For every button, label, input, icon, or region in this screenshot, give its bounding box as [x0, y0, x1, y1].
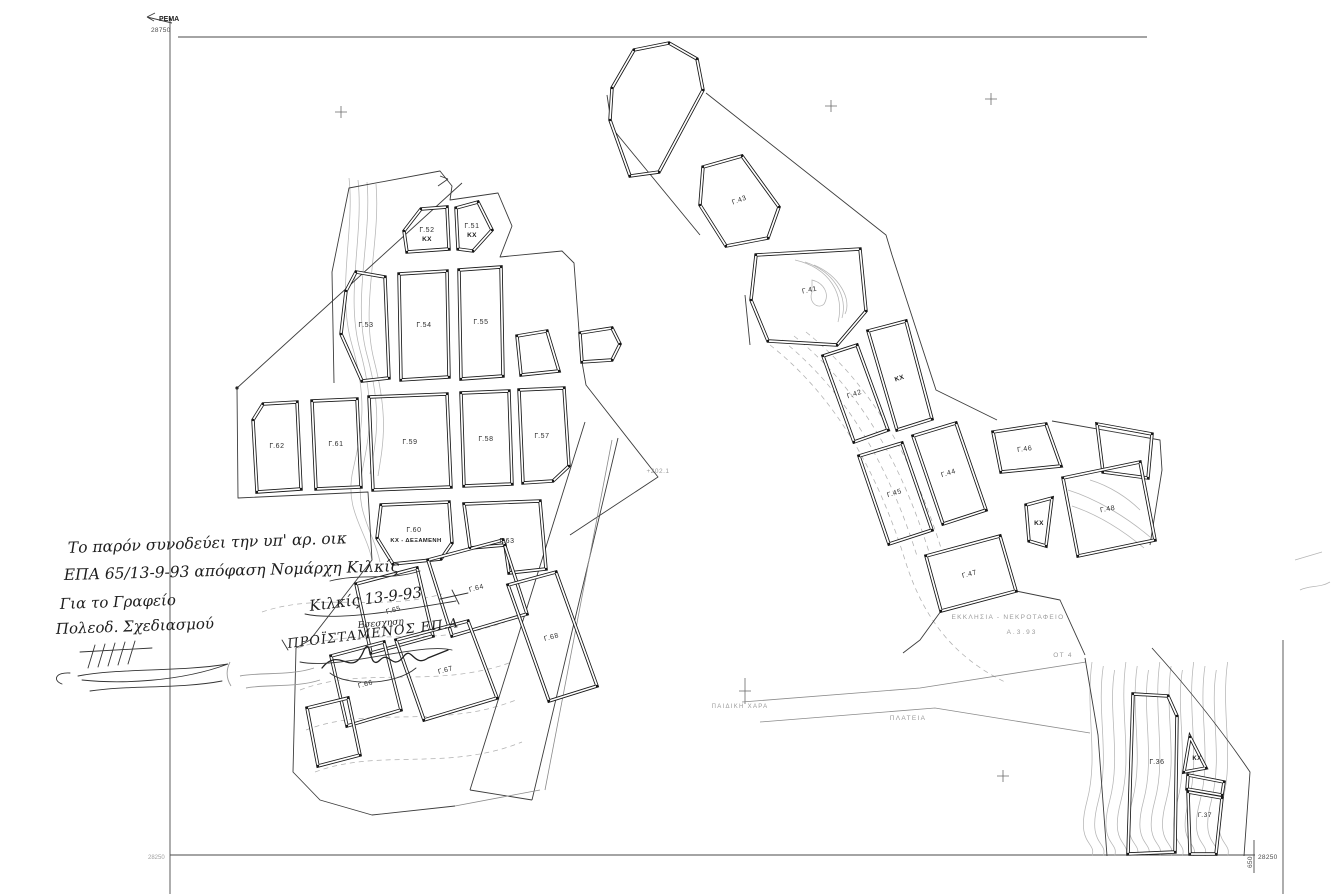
vertex-dot — [668, 42, 670, 44]
vertex-dot — [1051, 497, 1053, 499]
vertex-dot — [518, 389, 520, 391]
block-label: Γ.67 — [437, 665, 454, 676]
vertex-dot — [581, 361, 583, 363]
vertex-dot — [400, 709, 402, 711]
vertex-dot — [750, 299, 752, 301]
scribble-strikeout — [80, 641, 152, 668]
contour-line — [782, 340, 917, 556]
vertex-dot — [372, 489, 374, 491]
vertex-dot — [346, 725, 348, 727]
stamp-imprint — [227, 662, 320, 688]
vertex-dot — [611, 327, 613, 329]
block-label: Γ.42 — [846, 389, 863, 400]
vertex-dot — [539, 500, 541, 502]
vertex-dot — [296, 401, 298, 403]
vertex-dot — [1205, 767, 1207, 769]
vertex-dot — [1060, 465, 1062, 467]
vertex-dot — [912, 435, 914, 437]
vertex-dot — [552, 480, 554, 482]
vertex-dot — [507, 584, 509, 586]
vertex-dot — [446, 393, 448, 395]
vertex-dot — [548, 700, 550, 702]
block-label: Γ.68 — [543, 632, 560, 643]
zone-label: ΚΧ - ΔΕΞΑΜΕΝΗ — [390, 538, 441, 544]
registration-crosses — [335, 93, 1009, 782]
vertex-dot — [330, 655, 332, 657]
vertex-dot — [985, 509, 987, 511]
vertex-dot — [458, 269, 460, 271]
vertex-dot — [440, 558, 442, 560]
vertex-dot — [360, 486, 362, 488]
vertex-dot — [406, 251, 408, 253]
vertex-dot — [629, 175, 631, 177]
vertex-dot — [1127, 853, 1129, 855]
block-label: Γ.41 — [802, 286, 818, 296]
vertex-dot — [345, 290, 347, 292]
block-label: Γ.66 — [357, 679, 374, 690]
vertex-dot — [1154, 539, 1156, 541]
playground-label: ΠΑΙΔΙΚΗ ΧΑΡΑ — [712, 704, 769, 710]
block-label: Γ.48 — [1100, 505, 1116, 515]
vertex-dot — [252, 419, 254, 421]
vertex-dot — [508, 572, 510, 574]
vertex-dot — [317, 765, 319, 767]
handwriting-line-1: Το παρόν συνοδεύει την υπ' αρ. οικ — [68, 529, 348, 557]
vertex-dot — [1147, 477, 1149, 479]
vertex-dot — [262, 403, 264, 405]
contour-line — [1068, 490, 1150, 537]
vertex-dot — [311, 400, 313, 402]
vertex-dot — [545, 568, 547, 570]
vertex-dot — [992, 431, 994, 433]
vertex-dot — [778, 206, 780, 208]
vertex-dot — [416, 567, 418, 569]
vertex-dot — [356, 398, 358, 400]
vertex-dot — [901, 442, 903, 444]
vertex-dot — [423, 719, 425, 721]
contour-line — [1117, 662, 1126, 856]
vertex-dot — [477, 201, 479, 203]
contour-line — [345, 178, 372, 560]
vertex-dot — [696, 58, 698, 60]
vertex-dot — [568, 465, 570, 467]
vertex-dot — [905, 320, 907, 322]
vertex-dot — [563, 387, 565, 389]
vertex-dot — [491, 229, 493, 231]
bottom-right-side-coordinate: 650 — [1247, 856, 1254, 868]
vertex-dot — [520, 374, 522, 376]
register-cross-icon — [335, 106, 347, 118]
vertex-dot — [256, 491, 258, 493]
vertex-dot — [420, 208, 422, 210]
handwriting-line-4: Πολεοδ. Σχεδιασμού — [55, 614, 215, 638]
contour-line — [306, 700, 516, 730]
block-label: Γ.64 — [468, 583, 485, 594]
block-label: Γ.43 — [731, 195, 748, 207]
block-label: Γ.44 — [940, 468, 957, 479]
zone-label: ΚΧ — [467, 232, 477, 239]
vertex-dot — [450, 486, 452, 488]
block-label: Γ.61 — [328, 441, 343, 448]
vertex-dot — [1139, 461, 1141, 463]
vertex-dot — [1223, 781, 1225, 783]
survey-line-arrow — [438, 176, 448, 186]
vertex-dot — [1102, 471, 1104, 473]
vertex-dot — [865, 310, 867, 312]
vertex-dot — [867, 330, 869, 332]
block-labels: Γ.52 ΚΧ Γ.51 ΚΧ Γ.53 Γ.54 Γ.55 Γ.62 Γ.61… — [269, 195, 1212, 819]
scribble-oval — [56, 664, 228, 691]
vertex-dot — [1174, 851, 1176, 853]
right-cluster-boundary — [903, 611, 941, 653]
block-label: Γ.51 — [464, 223, 479, 230]
vertex-dot — [1028, 540, 1030, 542]
vertex-dot — [699, 204, 701, 206]
vertex-dot — [395, 639, 397, 641]
vertex-dot — [496, 697, 498, 699]
zone-label: ΚΧ — [1192, 756, 1201, 762]
vertex-dot — [1132, 693, 1134, 695]
vertex-dot — [315, 488, 317, 490]
vertex-dot — [451, 542, 453, 544]
handwriting-place-date: Κιλκίς 13-9-93 — [307, 583, 423, 615]
vertex-dot — [398, 273, 400, 275]
vertex-dot — [460, 392, 462, 394]
zone-label: ΚΧ — [1034, 520, 1044, 527]
vertex-dot — [469, 547, 471, 549]
vertex-dot — [853, 441, 855, 443]
block-label: Γ.45 — [886, 488, 903, 499]
road-strip — [470, 422, 618, 800]
block-unlabeled — [517, 331, 559, 375]
vertex-dot — [300, 488, 302, 490]
block-label: Γ.46 — [1017, 445, 1033, 454]
vertex-dot — [767, 237, 769, 239]
register-cross-icon — [997, 770, 1009, 782]
vertex-dot — [526, 613, 528, 615]
vertex-dot — [1062, 477, 1064, 479]
vertex-dot — [1187, 774, 1189, 776]
vertex-dot — [1215, 853, 1217, 855]
zone-label: ΚΧ — [894, 374, 906, 384]
vertex-dot — [767, 340, 769, 342]
vertex-dot — [1183, 771, 1185, 773]
contour-line — [1295, 552, 1330, 590]
vertex-dot — [1221, 794, 1223, 796]
vertex-dot — [446, 270, 448, 272]
vertex-dot — [741, 155, 743, 157]
vertex-dot — [596, 685, 598, 687]
vertex-dot — [355, 583, 357, 585]
contour-line — [814, 265, 847, 314]
vertex-dot — [446, 206, 448, 208]
vertex-dot — [942, 523, 944, 525]
vertex-dot — [347, 697, 349, 699]
block-label: Γ.47 — [961, 569, 978, 580]
vertex-dot — [1186, 788, 1188, 790]
zone-label: ΚΧ — [422, 236, 432, 243]
contour-line — [1140, 670, 1149, 856]
block-label: Γ.58 — [478, 436, 493, 443]
top-left-coordinate: 28750 — [151, 27, 171, 34]
vertex-dot — [511, 483, 513, 485]
vertex-dot — [1189, 736, 1191, 738]
vertex-dot — [355, 271, 357, 273]
contour-line — [1090, 480, 1140, 510]
block-label: Γ.54 — [416, 322, 431, 329]
vertex-dot — [306, 707, 308, 709]
block-label: Γ.59 — [402, 439, 417, 446]
vertex-dot — [1221, 797, 1223, 799]
vertex-dot — [463, 503, 465, 505]
vertex-dot — [1187, 791, 1189, 793]
vertex-dot — [448, 501, 450, 503]
vertex-dot — [558, 370, 560, 372]
vertex-dot — [448, 248, 450, 250]
street-wedge — [570, 362, 658, 535]
vertex-dot — [455, 207, 457, 209]
register-cross-icon — [739, 678, 751, 704]
vertex-dot — [361, 380, 363, 382]
contour-lines — [262, 178, 1330, 856]
vertex-dot — [1077, 555, 1079, 557]
vertex-dot — [611, 87, 613, 89]
block-label: Γ.55 — [473, 319, 488, 326]
right-cluster-boundary — [706, 93, 997, 420]
contour-line — [1106, 670, 1115, 856]
contour-line — [794, 336, 929, 552]
vertex-dot — [658, 171, 660, 173]
bottom-right-boundary — [1152, 648, 1250, 856]
vertex-dot — [508, 390, 510, 392]
block-label: Γ.63 — [499, 538, 514, 545]
vertex-dot — [427, 559, 429, 561]
city-blocks — [252, 42, 1225, 855]
vertex-dot — [888, 543, 890, 545]
block-label: Γ.53 — [358, 322, 373, 329]
vertex-dot — [755, 254, 757, 256]
vertex-dot — [858, 455, 860, 457]
street-outlines — [235, 93, 1250, 856]
vertex-dot — [522, 482, 524, 484]
signature-flourish — [300, 649, 452, 683]
vertex-dot — [1189, 853, 1191, 855]
vertex-dot — [856, 344, 858, 346]
contour-line — [1095, 666, 1104, 856]
vertex-dot — [859, 248, 861, 250]
vertex-dot — [555, 571, 557, 573]
church-cemetery-label: ΕΚΚΛΗΣΙΑ - ΝΕΚΡΟΤΑΦΕΙΟ — [952, 614, 1065, 621]
vertex-dot — [448, 376, 450, 378]
spot-elevation-label: +202.1 — [646, 468, 669, 475]
vertex-dot — [500, 266, 502, 268]
left-cluster-boundary — [332, 171, 579, 383]
vertex-dot — [1025, 504, 1027, 506]
block-g63 — [464, 501, 546, 573]
plateia-label: ΠΛΑΤΕΙΑ — [890, 715, 926, 722]
vertex-dot — [1000, 471, 1002, 473]
vertex-dot — [359, 754, 361, 756]
block-label: Γ.52 — [419, 227, 434, 234]
vertex-dot — [931, 529, 933, 531]
vertex-dot — [1151, 433, 1153, 435]
block-label: Γ.60 — [406, 527, 421, 534]
vertex-dot — [822, 355, 824, 357]
vertex-dot — [460, 378, 462, 380]
contour-line — [1083, 662, 1092, 856]
block-label: Γ.62 — [269, 443, 284, 450]
vertex-dot — [702, 89, 704, 91]
vertex-dot — [376, 537, 378, 539]
vertex-dot — [368, 396, 370, 398]
bottom-left-coordinate: 28250 — [148, 855, 165, 861]
vertex-dot — [940, 610, 942, 612]
vertex-dot — [999, 535, 1001, 537]
vertex-dot — [1096, 423, 1098, 425]
vertex-dot — [931, 418, 933, 420]
vertex-dot — [1045, 545, 1047, 547]
vertex-dot — [1176, 715, 1178, 717]
scanned-town-plan: ΡΕΜΑ 28750 28250 28250 650 — [0, 0, 1338, 894]
vertex-dot — [546, 330, 548, 332]
vertex-dot — [432, 635, 434, 637]
vertex-dot — [609, 119, 611, 121]
vertex-dot — [887, 429, 889, 431]
vertex-dot — [388, 377, 390, 379]
vertex-dot — [467, 620, 469, 622]
block-unlabeled — [307, 698, 360, 766]
vertex-dot — [702, 166, 704, 168]
register-cross-icon — [825, 100, 837, 112]
block-unlabeled — [610, 43, 703, 176]
vertex-dot — [1167, 695, 1169, 697]
vertex-dot — [457, 248, 459, 250]
vertex-dot — [403, 230, 405, 232]
bottom-right-coordinate: 28250 — [1258, 854, 1278, 861]
vertex-dot — [955, 422, 957, 424]
contour-line — [1208, 670, 1217, 856]
vertex-dot — [516, 335, 518, 337]
vertex-dot — [619, 343, 621, 345]
road-lines — [742, 662, 1090, 733]
vertex-dot — [383, 641, 385, 643]
vertex-dot — [472, 250, 474, 252]
vertex-dot — [340, 333, 342, 335]
vertex-dot — [463, 485, 465, 487]
handwriting-line-3: Για το Γραφείο — [59, 591, 177, 613]
block-label: Γ.37 — [1198, 812, 1212, 819]
vertex-dot — [1015, 590, 1017, 592]
vertex-dot — [611, 359, 613, 361]
vertex-dot — [896, 429, 898, 431]
map-annotations: ΕΚΚΛΗΣΙΑ - ΝΕΚΡΟΤΑΦΕΙΟ Α.3.93 ΠΛΑΤΕΙΑ ΠΑ… — [646, 468, 1072, 722]
vertex-dot — [579, 332, 581, 334]
vertex-dot — [633, 49, 635, 51]
road-lines — [455, 440, 612, 806]
vertex-dot — [725, 245, 727, 247]
register-cross-icon — [985, 93, 997, 105]
corner-arrow-label: ΡΕΜΑ — [159, 16, 179, 23]
vertex-dot — [502, 375, 504, 377]
vertex-dot — [380, 504, 382, 506]
church-date-label: Α.3.93 — [1007, 629, 1038, 636]
handwriting-line-2: ΕΠΑ 65/13-9-93 απόφαση Νομάρχη Κιλκίς — [63, 557, 400, 584]
vertex-dot — [384, 276, 386, 278]
block-label: Γ.36 — [1149, 759, 1164, 766]
vertex-dot — [1045, 423, 1047, 425]
vertex-dot — [836, 344, 838, 346]
vertex-dot — [451, 635, 453, 637]
block-ref-label: ΟΤ 4 — [1053, 652, 1073, 659]
block-label: Γ.57 — [534, 433, 549, 440]
vertex-dot — [400, 379, 402, 381]
vertex-dot — [925, 555, 927, 557]
